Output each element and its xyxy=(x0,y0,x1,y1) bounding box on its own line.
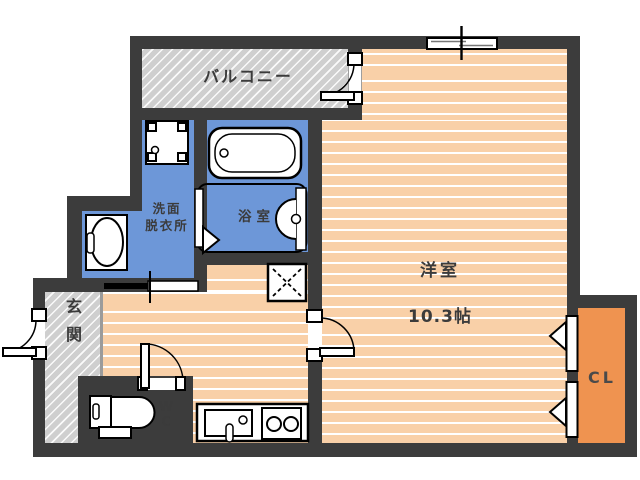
wc-door xyxy=(138,344,185,390)
entrance-label: 玄 関 xyxy=(59,293,89,349)
wc-label: W C xyxy=(154,401,178,430)
washroom-sliding-door xyxy=(104,271,198,303)
closet-folding-doors xyxy=(550,316,578,437)
fixtures-layer xyxy=(0,0,640,480)
balcony-door xyxy=(321,53,362,104)
room-name: 洋室 xyxy=(420,261,460,281)
room-door xyxy=(307,310,354,361)
bath-label: 浴室 xyxy=(214,209,299,227)
washbasin-icon xyxy=(86,215,127,270)
two-burner-stove-icon xyxy=(262,408,301,439)
room-size: 10.3帖 xyxy=(408,307,472,327)
floor-plan: バルコニー 洋室 10.3帖 洗面 脱衣所 浴室 玄 関 W C CL xyxy=(0,0,640,480)
entrance-door xyxy=(3,309,46,359)
bathtub-icon xyxy=(209,128,301,178)
closet-label: CL xyxy=(582,368,622,389)
washing-machine-pan-icon xyxy=(146,121,188,164)
toilet-icon xyxy=(90,396,155,438)
room-label: 洋室 10.3帖 xyxy=(375,237,505,329)
balcony-label: バルコニー xyxy=(188,67,308,88)
floor-hatch-icon xyxy=(268,264,306,301)
washroom-label: 洗面 脱衣所 xyxy=(130,200,204,234)
sliding-window-icon xyxy=(427,26,497,60)
